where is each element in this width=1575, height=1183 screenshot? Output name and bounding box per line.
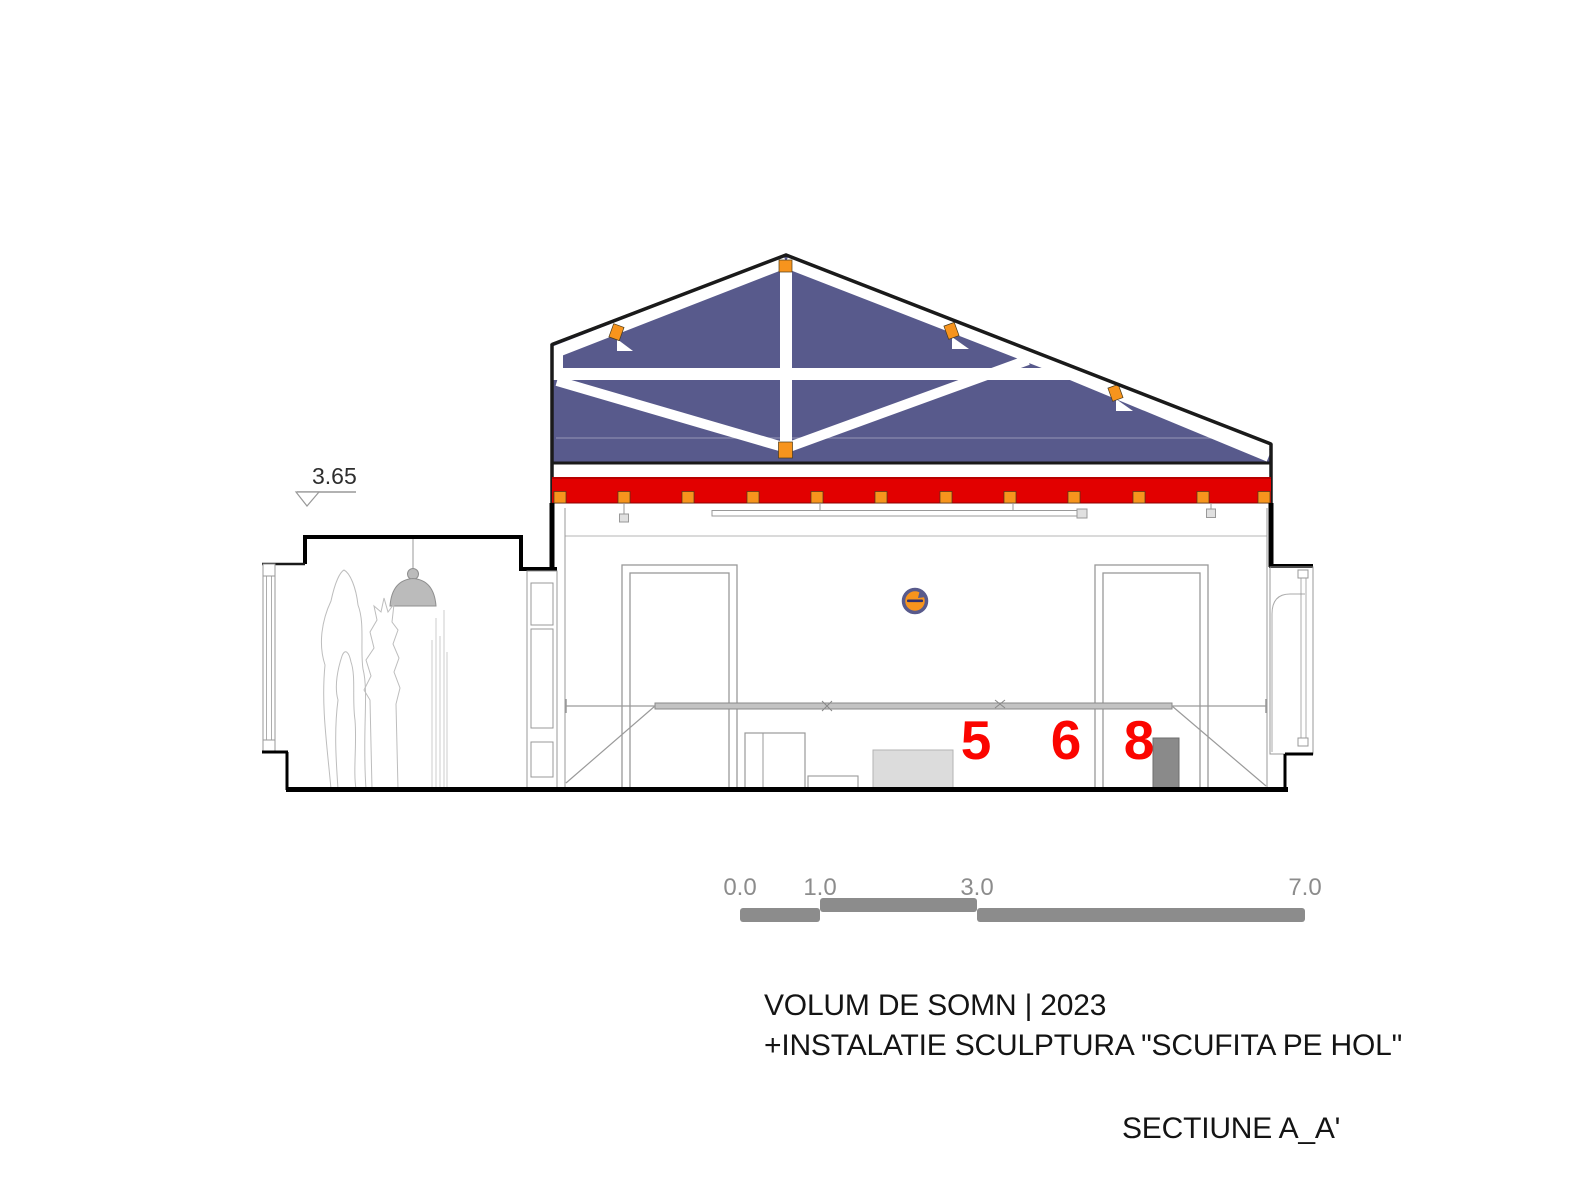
lamp-shade bbox=[390, 579, 436, 607]
red-beam bbox=[552, 477, 1271, 503]
orange-block bbox=[811, 492, 823, 504]
perspective-line-left bbox=[566, 706, 655, 783]
connector-peak bbox=[779, 260, 792, 272]
roof-truss bbox=[552, 255, 1271, 503]
orange-block bbox=[875, 492, 887, 504]
sculpture-number-6: 6 bbox=[1036, 713, 1096, 768]
panel-inset bbox=[531, 629, 553, 728]
pendant-lamp bbox=[390, 539, 436, 606]
annex-arched-opening bbox=[1272, 594, 1305, 752]
orange-block bbox=[1068, 492, 1080, 504]
plinth-light bbox=[873, 750, 953, 788]
scale-label-1: 1.0 bbox=[790, 874, 850, 902]
window-left-section bbox=[263, 564, 275, 752]
connector-king-post-base bbox=[779, 442, 793, 458]
window-cap-bottom bbox=[263, 740, 275, 752]
scale-label-3: 3.0 bbox=[947, 874, 1007, 902]
roof-fill bbox=[552, 255, 1271, 463]
ceiling-hangers bbox=[620, 503, 1216, 522]
scale-label-0: 0.0 bbox=[710, 874, 770, 902]
sculpture-number-8: 8 bbox=[1109, 713, 1169, 768]
scale-label-7: 7.0 bbox=[1275, 874, 1335, 902]
orange-block bbox=[1258, 492, 1270, 504]
truss-king-post bbox=[780, 263, 792, 443]
door-left-inner-frame bbox=[630, 573, 729, 788]
cabinet bbox=[745, 733, 805, 788]
panel-inset bbox=[531, 742, 553, 777]
annex-box bbox=[1270, 567, 1313, 754]
level-marker bbox=[296, 492, 356, 506]
level-triangle bbox=[296, 492, 319, 506]
badge-text-mark bbox=[907, 600, 923, 603]
orange-block bbox=[682, 492, 694, 504]
level-marker-value: 3.65 bbox=[312, 463, 357, 490]
left-room bbox=[262, 503, 557, 790]
floor-slab bbox=[286, 787, 1288, 792]
scale-segment bbox=[740, 908, 820, 922]
perspective-line-right bbox=[1172, 706, 1266, 786]
title-block: VOLUM DE SOMN | 2023 +INSTALATIE SCULPTU… bbox=[764, 986, 1402, 1066]
red-beam-band bbox=[552, 477, 1271, 503]
panel-jamb bbox=[527, 571, 557, 788]
scale-segment bbox=[977, 908, 1305, 922]
rail-bar bbox=[655, 703, 1172, 709]
panel-inset bbox=[531, 583, 553, 625]
orange-block bbox=[1133, 492, 1145, 504]
window-frame bbox=[263, 564, 275, 752]
light-track-bar bbox=[712, 511, 1086, 517]
sculpture-number-5: 5 bbox=[946, 713, 1006, 768]
architectural-section-sheet: 3.65 5 6 8 0.0 1.0 3.0 7.0 VOLUM DE SOMN… bbox=[0, 0, 1575, 1183]
door-left-outer-frame bbox=[622, 565, 737, 788]
low-bench bbox=[808, 776, 858, 788]
orange-block bbox=[747, 492, 759, 504]
hanger-box bbox=[1077, 509, 1087, 518]
project-subtitle: +INSTALATIE SCULPTURA "SCUFITA PE HOL" bbox=[764, 1026, 1402, 1066]
door-left bbox=[622, 565, 737, 788]
lamp-knob bbox=[408, 569, 419, 580]
orange-block bbox=[940, 492, 952, 504]
hanger-box bbox=[620, 514, 629, 522]
section-name-label: SECTIUNE A_A' bbox=[1122, 1112, 1340, 1146]
orange-block bbox=[1197, 492, 1209, 504]
right-annex bbox=[1269, 503, 1313, 790]
wall-badge bbox=[904, 590, 927, 613]
orange-block bbox=[618, 492, 630, 504]
hanger-box bbox=[1207, 509, 1216, 518]
orange-block bbox=[1004, 492, 1016, 504]
orange-block bbox=[554, 492, 566, 504]
plant-outline bbox=[364, 598, 400, 789]
window-cap-top bbox=[263, 564, 275, 576]
plant-outline bbox=[321, 570, 366, 789]
plant-outline bbox=[336, 652, 356, 789]
annex-cap-top bbox=[1298, 570, 1308, 578]
annex-cap-bottom bbox=[1298, 738, 1308, 746]
project-title: VOLUM DE SOMN | 2023 bbox=[764, 986, 1402, 1026]
